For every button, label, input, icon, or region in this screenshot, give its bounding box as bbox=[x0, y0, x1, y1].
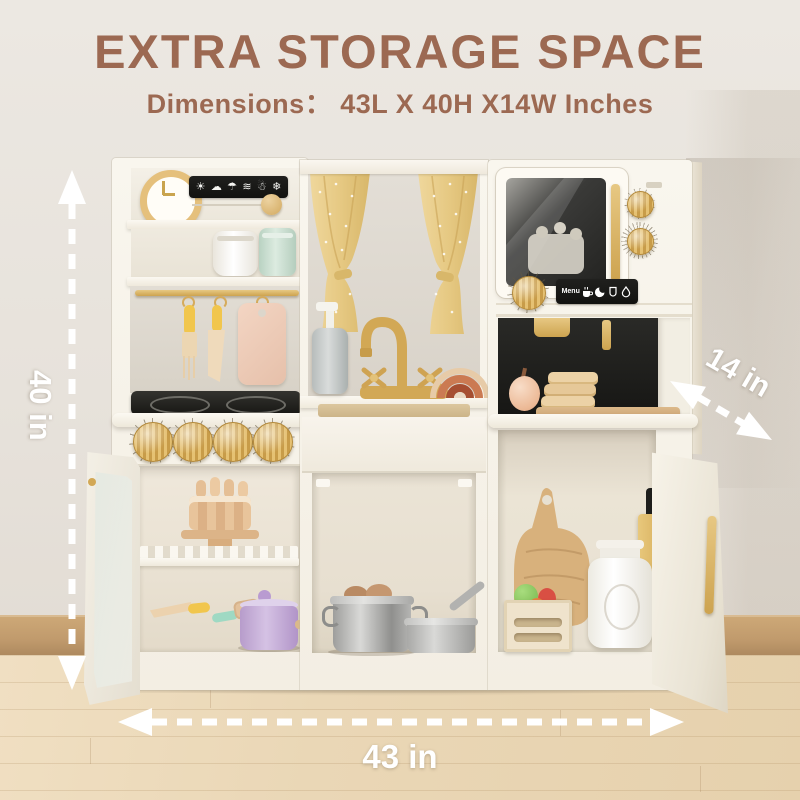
panel-seam bbox=[496, 314, 692, 317]
hutch-shelf-board bbox=[127, 277, 305, 286]
door-hinge bbox=[316, 479, 330, 487]
coffee-menu-label: Menu bbox=[562, 288, 580, 295]
cake-peg-candle bbox=[210, 477, 220, 497]
fork-tine bbox=[183, 356, 185, 378]
product-image: EXTRA STORAGE SPACE Dimensions： 43L X 40… bbox=[0, 0, 800, 800]
steamer-knob bbox=[536, 226, 548, 238]
sink-basin bbox=[318, 404, 470, 417]
stockpot-handle bbox=[322, 606, 341, 627]
hanging-rail bbox=[135, 290, 299, 296]
floor-plank-seam bbox=[700, 766, 701, 792]
microwave-timer-knob bbox=[627, 228, 654, 255]
soap-bottle bbox=[312, 328, 348, 394]
wind-icon: ≋ bbox=[242, 182, 251, 193]
cabinet-shelf-board bbox=[137, 558, 299, 566]
page-title: EXTRA STORAGE SPACE bbox=[0, 24, 800, 79]
snow-cloud-icon: ☃ bbox=[257, 182, 267, 193]
steamer-knob bbox=[570, 228, 582, 240]
window-top-beam bbox=[300, 160, 488, 174]
coffee-lever bbox=[602, 320, 611, 350]
right-counter-edge bbox=[488, 414, 698, 428]
jug-emboss bbox=[604, 584, 640, 630]
burner-ring bbox=[226, 396, 286, 414]
frypan-body bbox=[407, 625, 475, 653]
alcove-side-column bbox=[658, 318, 690, 416]
purple-pot-body bbox=[240, 606, 298, 650]
toy-peach bbox=[509, 376, 540, 411]
crate-slot bbox=[514, 633, 562, 642]
stove-knob bbox=[213, 422, 253, 462]
mint-canister-rim bbox=[262, 233, 293, 238]
rainbow-stacker-toy bbox=[430, 358, 490, 400]
cake-stand-plate bbox=[181, 530, 259, 539]
stove-knob bbox=[133, 422, 173, 462]
clock-hour-hand bbox=[163, 193, 175, 196]
right-cabinet-door bbox=[652, 450, 728, 716]
coffee-dispenser-spout bbox=[534, 318, 570, 337]
faucet-spout-tip bbox=[360, 348, 372, 357]
hanging-fork-head bbox=[182, 332, 197, 358]
soap-pump-tube bbox=[326, 308, 334, 330]
board-hang-hole bbox=[542, 495, 552, 505]
page-subtitle: Dimensions： 43L X 40H X14W Inches bbox=[0, 82, 800, 121]
crate-slot bbox=[514, 618, 562, 627]
wall-shadow bbox=[686, 158, 800, 488]
hanging-fork-handle bbox=[184, 305, 195, 335]
board-hole bbox=[258, 309, 266, 317]
fork-tine bbox=[188, 356, 190, 380]
door-glass-pane bbox=[94, 472, 132, 690]
tea-cup-icon bbox=[607, 286, 619, 298]
microwave-glass bbox=[506, 178, 606, 286]
fork-tine bbox=[193, 356, 195, 378]
soap-pump-spout bbox=[316, 302, 338, 311]
rain-cloud-icon: ☂ bbox=[227, 182, 237, 193]
toy-cake bbox=[189, 496, 251, 530]
door-gold-knob bbox=[88, 478, 96, 486]
burner-ring bbox=[150, 396, 210, 414]
steamer-pot-inside bbox=[528, 234, 584, 274]
height-dimension-label: 40 in bbox=[22, 370, 58, 430]
floor-plank-seam bbox=[90, 738, 91, 764]
steamer-knob bbox=[554, 222, 566, 234]
sink-front-panel bbox=[302, 417, 486, 473]
sun-icon: ☀ bbox=[196, 182, 206, 193]
microwave-label-chip bbox=[646, 182, 662, 188]
coffee-display: Menu bbox=[556, 279, 638, 304]
stove-knob bbox=[253, 422, 293, 462]
stove-knob bbox=[173, 422, 213, 462]
stockpot-body bbox=[333, 604, 411, 652]
door-hinge bbox=[458, 479, 472, 487]
hanging-knife-handle bbox=[212, 305, 222, 332]
snowflake-icon: ❄ bbox=[272, 182, 281, 193]
white-canister-rim bbox=[217, 236, 254, 241]
microwave-knob bbox=[627, 191, 654, 218]
width-dimension-label: 43 in bbox=[340, 738, 460, 776]
croissant-icon bbox=[594, 286, 606, 298]
floor-plank-seam bbox=[560, 710, 561, 736]
water-drop-icon bbox=[620, 286, 632, 298]
coffee-knob bbox=[512, 276, 546, 310]
cloud-icon: ☁ bbox=[211, 182, 222, 193]
microwave-handle bbox=[611, 184, 620, 282]
coffee-cup-icon bbox=[581, 286, 593, 298]
slider-wood-knob bbox=[261, 194, 282, 215]
